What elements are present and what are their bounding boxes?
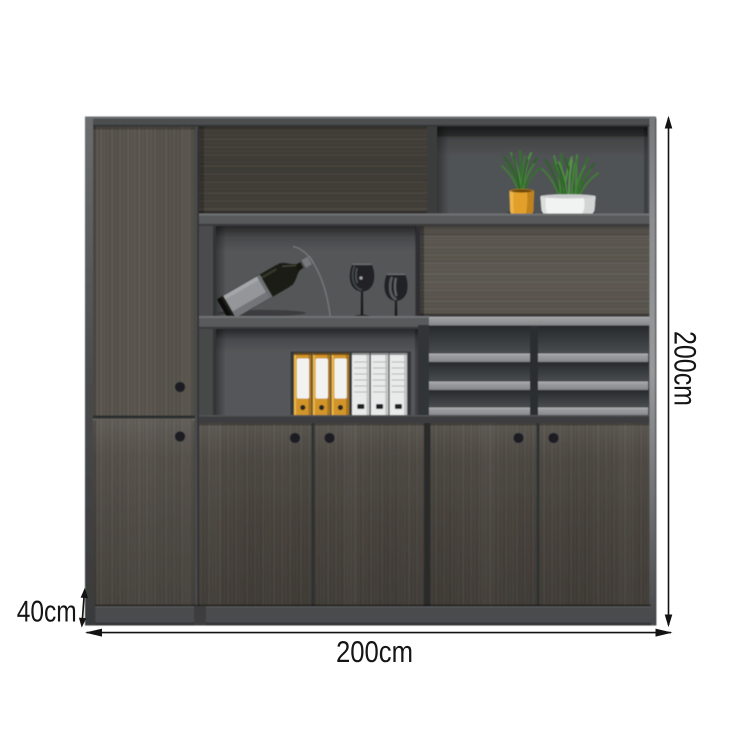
svg-text:200cm: 200cm [668,331,703,406]
svg-text:200cm: 200cm [336,636,413,669]
svg-text:40cm: 40cm [17,596,77,629]
